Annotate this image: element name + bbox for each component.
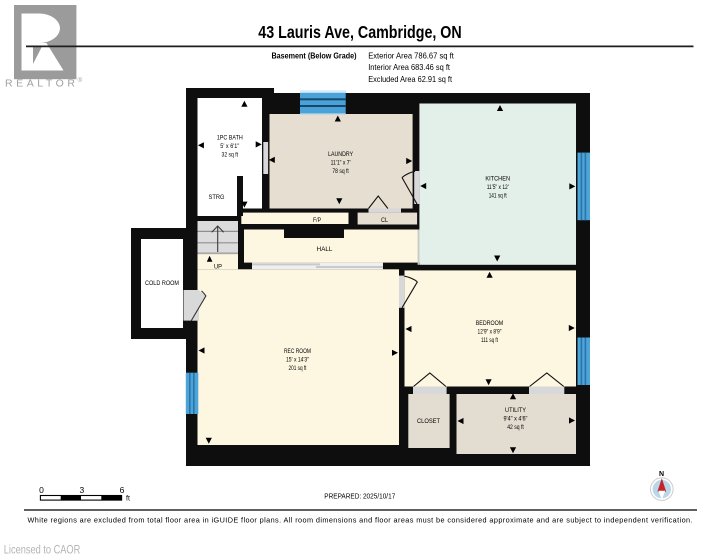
svg-text:Excluded Area 62.91 sq ft: Excluded Area 62.91 sq ft (368, 75, 452, 84)
svg-text:0: 0 (39, 485, 44, 495)
svg-text:15' x 14'3": 15' x 14'3" (286, 357, 309, 364)
svg-text:201 sq ft: 201 sq ft (289, 365, 307, 372)
svg-text:STRG: STRG (209, 194, 225, 201)
svg-text:REC ROOM: REC ROOM (284, 348, 311, 355)
svg-text:Licensed to CAOR: Licensed to CAOR (4, 545, 81, 556)
svg-text:111 sq ft: 111 sq ft (481, 337, 498, 344)
svg-text:LAUNDRY: LAUNDRY (328, 151, 353, 158)
svg-text:Interior Area 683.46 sq ft: Interior Area 683.46 sq ft (368, 63, 450, 72)
svg-text:78 sq ft: 78 sq ft (332, 168, 349, 175)
svg-text:12'9" x 8'9": 12'9" x 8'9" (478, 329, 502, 336)
svg-text:UP: UP (214, 263, 222, 270)
svg-text:UTILITY: UTILITY (505, 407, 526, 414)
svg-text:PREPARED: 2025/10/17: PREPARED: 2025/10/17 (324, 491, 395, 500)
svg-text:141 sq ft: 141 sq ft (489, 192, 507, 199)
svg-text:6: 6 (120, 485, 125, 495)
svg-text:COLD ROOM: COLD ROOM (145, 280, 179, 287)
svg-text:BEDROOM: BEDROOM (476, 320, 504, 327)
svg-text:Basement (Below Grade): Basement (Below Grade) (272, 52, 357, 61)
svg-text:CL: CL (381, 217, 389, 224)
svg-text:®: ® (78, 76, 83, 84)
svg-text:CLOSET: CLOSET (417, 418, 440, 425)
svg-text:5' x 6'1": 5' x 6'1" (220, 143, 239, 150)
svg-text:3: 3 (80, 485, 85, 495)
svg-text:11'5" x 12': 11'5" x 12' (487, 184, 509, 191)
svg-text:ft: ft (126, 496, 130, 503)
svg-text:1PC BATH: 1PC BATH (217, 135, 243, 142)
svg-text:32 sq ft: 32 sq ft (222, 152, 239, 159)
svg-text:Exterior Area 786.67 sq ft: Exterior Area 786.67 sq ft (368, 52, 454, 61)
svg-text:N: N (659, 471, 664, 478)
svg-text:43 Lauris Ave, Cambridge, ON: 43 Lauris Ave, Cambridge, ON (258, 22, 461, 42)
svg-text:11'1" x 7': 11'1" x 7' (331, 160, 351, 167)
svg-text:HALL: HALL (317, 246, 333, 253)
svg-text:42 sq ft: 42 sq ft (507, 424, 524, 431)
svg-text:KITCHEN: KITCHEN (485, 175, 510, 182)
svg-text:White regions are excluded fro: White regions are excluded from total fl… (28, 516, 693, 525)
svg-text:F/P: F/P (313, 217, 321, 224)
svg-text:9'4" x 4'6": 9'4" x 4'6" (504, 416, 528, 423)
